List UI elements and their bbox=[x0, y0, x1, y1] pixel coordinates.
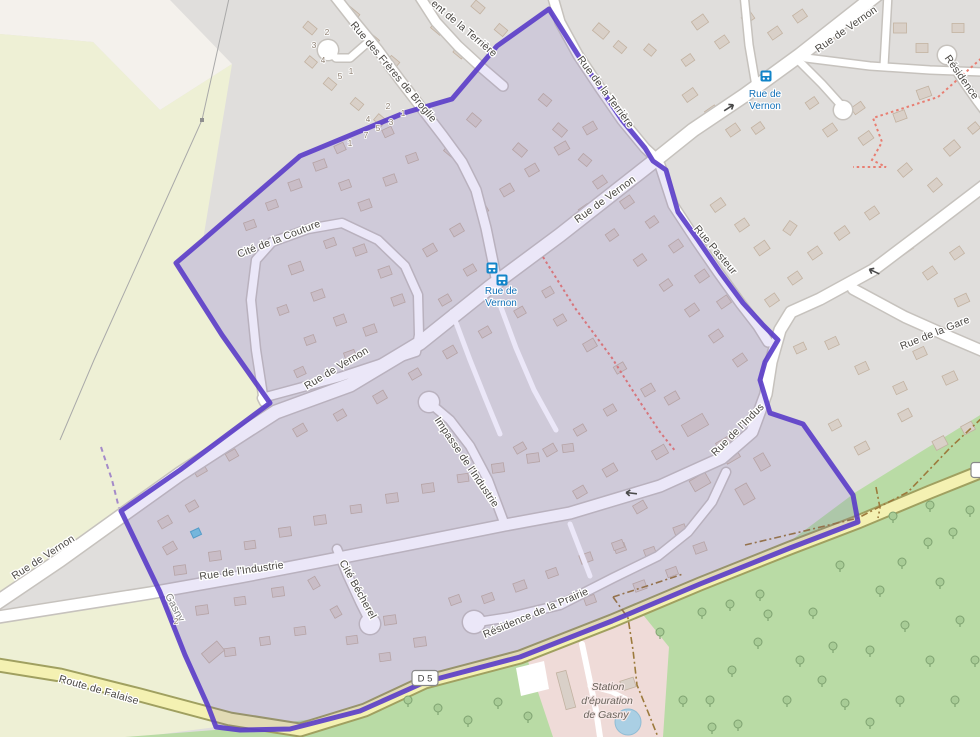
house-number: 1 bbox=[401, 108, 406, 118]
power-pylon bbox=[200, 118, 204, 122]
route-shield-d-5: D 5 bbox=[412, 671, 438, 686]
bus-stop-icon bbox=[761, 71, 772, 82]
house-number: 5 bbox=[376, 123, 381, 133]
house-number: 2 bbox=[386, 101, 391, 111]
building bbox=[894, 23, 907, 33]
house-number: 7 bbox=[364, 130, 369, 140]
building bbox=[952, 24, 964, 33]
house-number: 2 bbox=[325, 27, 330, 37]
house-number: 1 bbox=[349, 66, 354, 76]
station-label-station: Station bbox=[592, 681, 625, 693]
cul-de-sac bbox=[834, 101, 852, 119]
svg-text:D 5: D 5 bbox=[418, 674, 433, 685]
bus-stop-icon bbox=[487, 263, 498, 274]
house-number: 2 bbox=[174, 616, 179, 626]
transit-label-rue-de: Rue de bbox=[485, 286, 518, 297]
house-number: 5 bbox=[338, 71, 343, 81]
house-number: 3 bbox=[389, 117, 394, 127]
openstreetmap-rendering: Rue des Frères de Broglieent de la Terri… bbox=[0, 0, 980, 737]
transit-label-vernon: Vernon bbox=[485, 298, 517, 309]
route-shield-d: D bbox=[971, 463, 980, 478]
station-label-d-puration: d'épuration bbox=[581, 695, 633, 707]
building bbox=[916, 44, 928, 53]
road-top-right-stub bbox=[884, 0, 888, 66]
house-number: 4 bbox=[366, 114, 371, 124]
transit-label-rue-de: Rue de bbox=[749, 89, 782, 100]
bus-stop-icon bbox=[497, 275, 508, 286]
transit-label-vernon: Vernon bbox=[749, 101, 781, 112]
house-number: 4 bbox=[321, 55, 326, 65]
map-canvas[interactable]: Rue des Frères de Broglieent de la Terri… bbox=[0, 0, 980, 737]
house-number: 1 bbox=[348, 138, 353, 148]
station-label-de-gasny: de Gasny bbox=[584, 709, 630, 721]
house-number: 3 bbox=[312, 40, 317, 50]
